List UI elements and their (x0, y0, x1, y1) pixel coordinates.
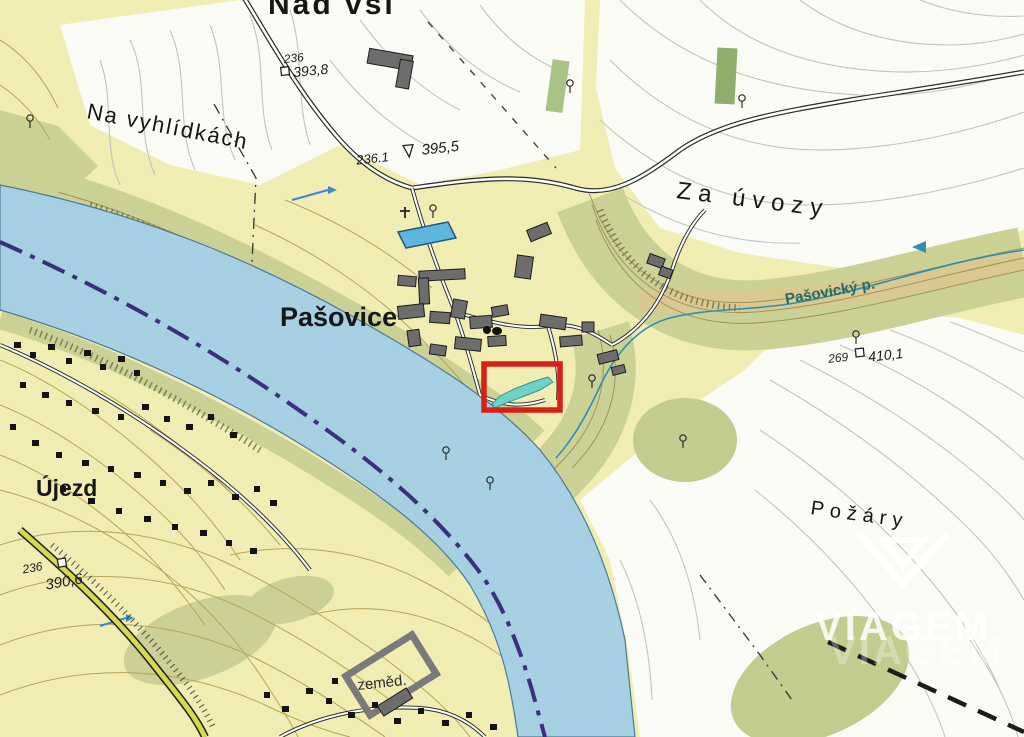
map-canvas: 236 393,8 236.1 395,5 269 410,1 236 390,… (0, 0, 1024, 737)
label-ujezd: Újezd (36, 474, 97, 501)
label-nad-vsi: Nad vsí (268, 0, 396, 21)
village-center-dot (483, 326, 491, 334)
elevation-point-id: 269 (826, 350, 849, 366)
label-pasovice: Pašovice (280, 302, 397, 332)
watermark-text: VIAGEM (815, 605, 991, 649)
topographic-map: 236 393,8 236.1 395,5 269 410,1 236 390,… (0, 0, 1024, 737)
village-center-mark (492, 327, 502, 335)
